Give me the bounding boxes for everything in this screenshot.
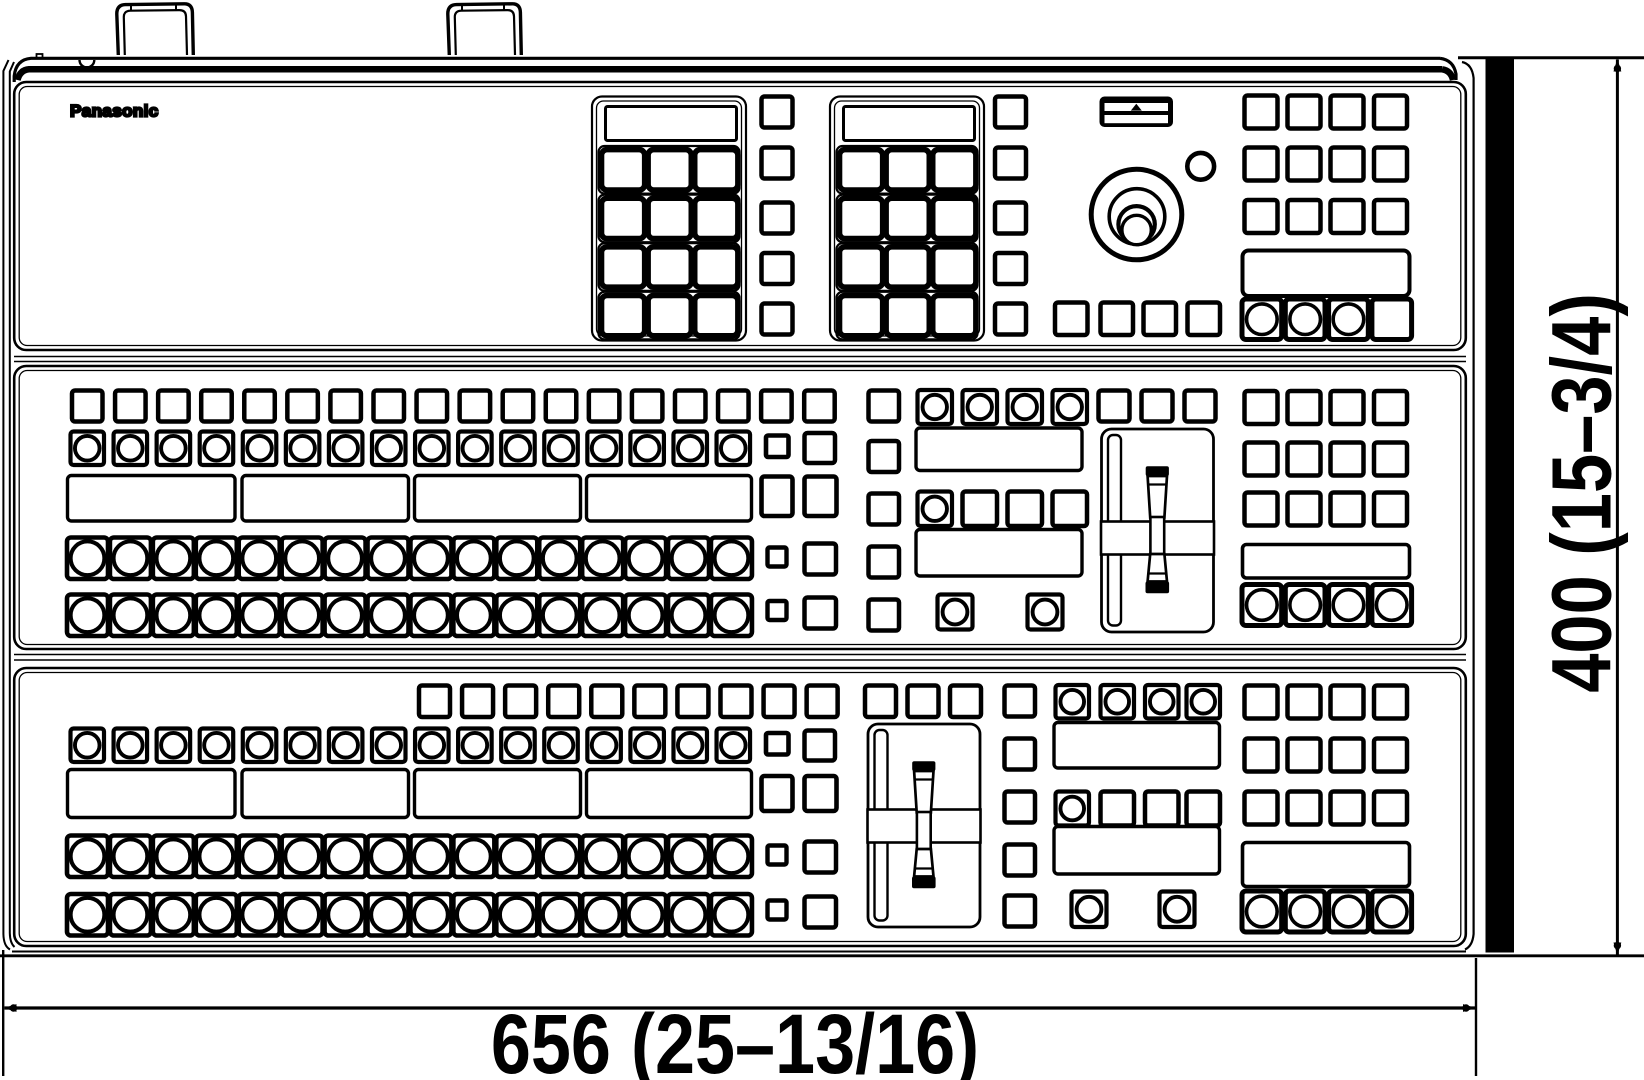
svg-text:Panasonic: Panasonic [70, 102, 159, 121]
svg-text:656 (25–13/16): 656 (25–13/16) [491, 997, 979, 1080]
svg-text:400 (15–3/4): 400 (15–3/4) [1536, 293, 1629, 693]
